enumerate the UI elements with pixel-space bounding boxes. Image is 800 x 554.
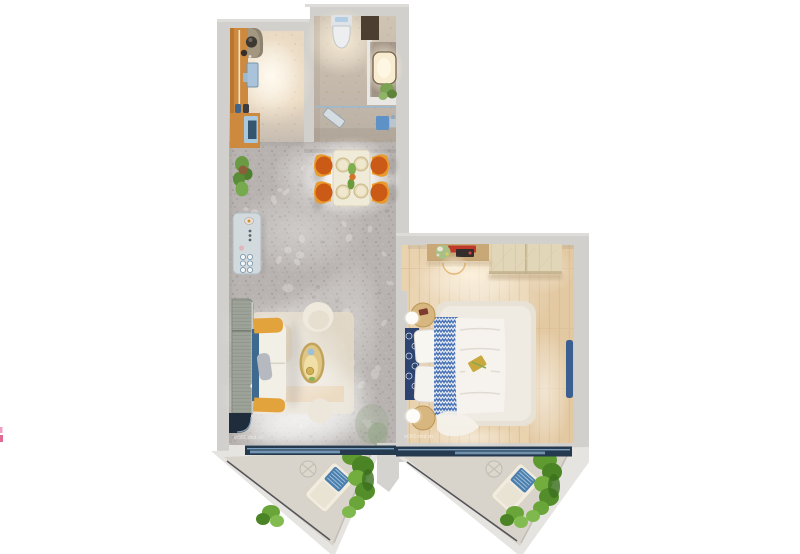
svg-text:vr360.dnd.vn: vr360.dnd.vn xyxy=(234,435,263,441)
svg-text:vr360.dnd.vn: vr360.dnd.vn xyxy=(404,434,433,440)
